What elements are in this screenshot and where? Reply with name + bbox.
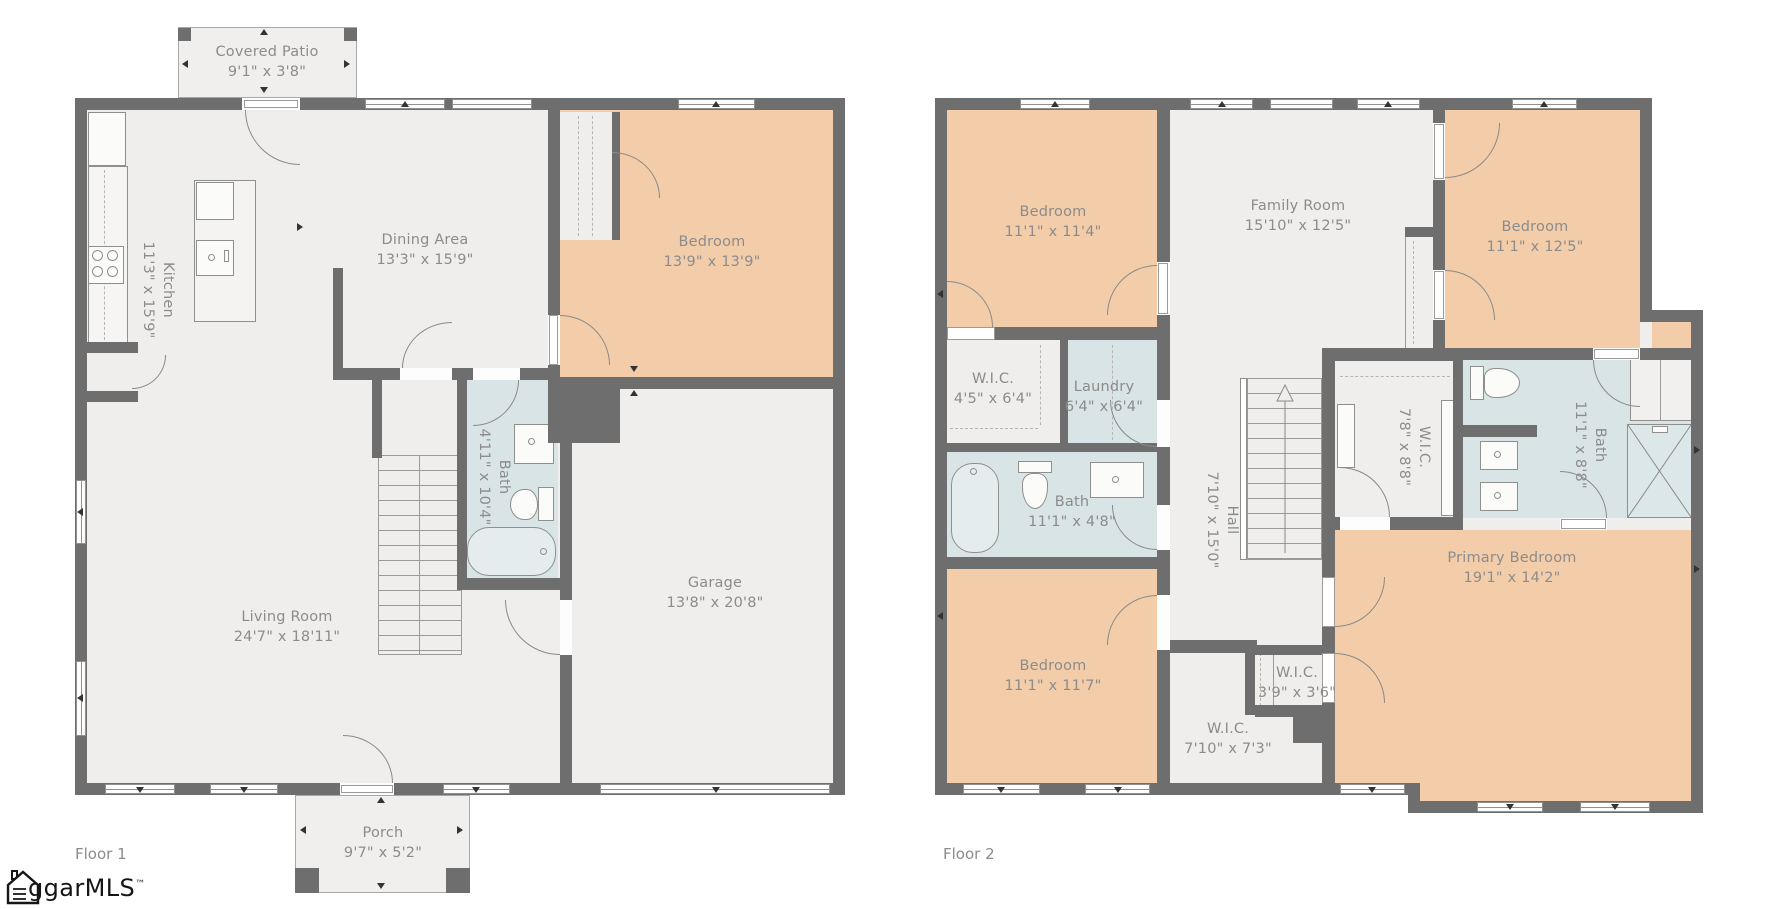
room-label-bedroom-tr: Bedroom 11'1" x 12'5" (1486, 217, 1583, 257)
room-name: Laundry (1065, 377, 1143, 397)
dimension-arrow-icon (136, 787, 144, 793)
room-label-laundry: Laundry 6'4" x 6'4" (1065, 377, 1143, 417)
wall (1453, 361, 1463, 530)
room-dims: 11'1" x 8'8" (1570, 401, 1590, 489)
room-dims: 7'10" x 15'0" (1202, 471, 1222, 568)
floor2-label: Floor 2 (943, 845, 995, 863)
door-leaf (1561, 519, 1606, 529)
wall (1433, 320, 1445, 348)
door-opening (560, 600, 572, 655)
wall (1420, 801, 1692, 813)
room-label-porch: Porch 9'7" x 5'2" (344, 823, 422, 863)
dimension-arrow-icon (1051, 101, 1059, 107)
wall (1322, 627, 1335, 653)
room-name: Bedroom (1004, 202, 1101, 222)
room-label-bath-1: Bath 4'11" x 10'4" (474, 428, 514, 525)
room-label-family-room: Family Room 15'10" x 12'5" (1245, 196, 1352, 236)
room-dims: 9'1" x 3'8" (215, 62, 318, 82)
dimension-arrow-icon (300, 826, 306, 834)
shower-x-icon (1627, 424, 1692, 518)
dimension-arrow-icon (260, 29, 268, 35)
wall (1322, 348, 1463, 361)
dimension-arrow-icon (240, 787, 248, 793)
room-dims: 11'1" x 11'4" (1004, 222, 1101, 242)
wall (1322, 530, 1335, 577)
porch-post (446, 868, 470, 893)
room-label-bath-3: Bath 11'1" x 8'8" (1570, 401, 1610, 489)
room-dims: 11'1" x 4'8" (1028, 512, 1116, 532)
closet-shelf-line (950, 428, 1038, 429)
room-dims: 9'7" x 5'2" (344, 843, 422, 863)
wall (1157, 640, 1257, 653)
room-name: W.I.C. (954, 369, 1032, 389)
dimension-arrow-icon (457, 826, 463, 834)
room-label-wic-1: W.I.C. 4'5" x 6'4" (954, 369, 1032, 409)
room-label-kitchen: Kitchen 11'3" x 15'9" (138, 241, 178, 338)
dimension-arrow-icon (297, 223, 303, 231)
wall (1433, 180, 1445, 270)
room-name: Covered Patio (215, 42, 318, 62)
toilet-tank (1018, 461, 1052, 473)
room-name: Bedroom (1004, 656, 1101, 676)
wall (1405, 227, 1445, 237)
room-name: Garage (666, 573, 763, 593)
stairs (378, 455, 462, 655)
wall (1245, 645, 1255, 715)
logo-text: ggarMLS™ (28, 874, 146, 902)
dimension-arrow-icon (1694, 565, 1700, 573)
door-leaf (1322, 577, 1335, 627)
dimension-arrow-icon (1506, 804, 1514, 810)
room-label-living-room: Living Room 24'7" x 18'11" (234, 607, 341, 647)
wall (1157, 650, 1170, 783)
wall (1157, 340, 1170, 400)
door-opening (1157, 595, 1170, 650)
room-label-bedroom-tl: Bedroom 11'1" x 11'4" (1004, 202, 1101, 242)
door-leaf (244, 100, 298, 108)
dimension-arrow-icon (1384, 101, 1392, 107)
dimension-arrow-icon (997, 787, 1005, 793)
dimension-arrow-icon (1611, 804, 1619, 810)
stairs-up-arrow-icon (1270, 383, 1300, 558)
room-label-wic-4: W.I.C. 7'10" x 7'3" (1184, 719, 1272, 759)
linen-divider-line (1660, 359, 1661, 421)
burner-icon (92, 266, 103, 277)
door-opening (1157, 505, 1170, 550)
wall (947, 443, 1157, 452)
toilet-tank (538, 487, 554, 521)
room-dims: 7'8" x 8'8" (1394, 408, 1414, 486)
wall (1157, 550, 1170, 595)
closet-rod-line (578, 116, 579, 236)
pantry-area (87, 353, 132, 391)
dimension-arrow-icon (472, 787, 480, 793)
room-name: Bath (494, 428, 514, 525)
room-dims: 13'9" x 13'9" (663, 252, 760, 272)
wall (1433, 110, 1445, 123)
wall (1640, 310, 1703, 322)
dimension-arrow-icon (1540, 101, 1548, 107)
trademark-symbol: ™ (135, 879, 145, 890)
wall (995, 327, 1157, 340)
half-wall (1457, 425, 1537, 437)
patio-post (344, 28, 357, 41)
wall (1322, 348, 1335, 530)
room-name: Bath (1590, 401, 1610, 489)
faucet-icon (540, 548, 547, 555)
door-opening (1157, 400, 1170, 447)
window (1270, 99, 1333, 109)
room-dims: 13'3" x 15'9" (376, 250, 473, 270)
room-name: W.I.C. (1184, 719, 1272, 739)
wall-notch (548, 377, 620, 443)
toilet-bowl (510, 489, 538, 520)
dimension-arrow-icon (401, 101, 409, 107)
wall (333, 368, 400, 380)
dimension-arrow-icon (1694, 446, 1700, 454)
floor1-label: Floor 1 (75, 845, 127, 863)
wall (333, 268, 343, 380)
door-leaf (549, 315, 558, 365)
wall (1157, 110, 1170, 262)
patio-post (178, 28, 191, 41)
wall (80, 391, 138, 402)
dimension-arrow-icon (630, 366, 638, 372)
wall (1157, 315, 1170, 340)
bedroom1-closet (560, 112, 612, 240)
room-label-primary-bedroom: Primary Bedroom 19'1" x 14'2" (1447, 548, 1576, 588)
door-opening (1340, 517, 1390, 530)
room-dims: 19'1" x 14'2" (1447, 568, 1576, 588)
room-dims: 24'7" x 18'11" (234, 627, 341, 647)
wall (372, 380, 382, 458)
room-label-bedroom-bl: Bedroom 11'1" x 11'7" (1004, 656, 1101, 696)
door-leaf (1434, 124, 1444, 179)
room-name: W.I.C. (1414, 408, 1434, 486)
dimension-arrow-icon (712, 101, 720, 107)
room-dims: 13'8" x 20'8" (666, 593, 763, 613)
faucet-icon (224, 250, 229, 262)
room-name: W.I.C. (1258, 663, 1336, 683)
sink-drain-icon (208, 254, 215, 261)
toilet-tank (1470, 366, 1484, 400)
door-opening (473, 368, 520, 380)
room-name: Kitchen (158, 241, 178, 338)
dimension-arrow-icon (937, 612, 943, 620)
room-dims: 11'1" x 11'7" (1004, 676, 1101, 696)
brand-logo: ggarMLS™ (4, 868, 154, 908)
room-name: Porch (344, 823, 422, 843)
dimension-arrow-icon (1368, 787, 1376, 793)
room-dims: 15'10" x 12'5" (1245, 216, 1352, 236)
dimension-arrow-icon (260, 87, 268, 93)
floorplan-canvas: Covered Patio 9'1" x 3'8" Kitchen 11'3" … (0, 0, 1780, 909)
room-name: Hall (1222, 471, 1242, 568)
primary-bedroom-area (1420, 783, 1692, 801)
wall (80, 342, 138, 353)
bedroom-tr-area (1652, 322, 1691, 348)
wall (935, 98, 947, 795)
wall (1390, 517, 1453, 530)
wall (560, 655, 572, 783)
dimension-arrow-icon (377, 797, 385, 803)
sink-drain-icon (1112, 476, 1119, 483)
window (452, 99, 532, 109)
room-dims: 4'11" x 10'4" (474, 428, 494, 525)
door-leaf (341, 785, 393, 793)
room-name: Primary Bedroom (1447, 548, 1576, 568)
wall (457, 578, 570, 590)
room-label-bath-2: Bath 11'1" x 4'8" (1028, 492, 1116, 532)
wall (833, 98, 845, 795)
wall (1245, 645, 1322, 655)
burner-icon (92, 250, 103, 261)
wall (1322, 703, 1335, 783)
sink-drain-icon (1494, 451, 1501, 458)
wall (452, 368, 473, 380)
dimension-arrow-icon (1218, 101, 1226, 107)
logo-word: ggarMLS (28, 874, 135, 902)
stair-rail-line (419, 455, 420, 655)
room-name: Bath (1028, 492, 1116, 512)
room-name: Living Room (234, 607, 341, 627)
dimension-arrow-icon (344, 60, 350, 68)
dimension-arrow-icon (937, 290, 943, 298)
door-leaf (1434, 271, 1444, 319)
room-label-hall: Hall 7'10" x 15'0" (1202, 471, 1242, 568)
wall (947, 557, 1163, 569)
wall (1408, 783, 1420, 813)
closet-edge-line (1405, 237, 1406, 348)
burner-icon (107, 250, 118, 261)
room-name: Bedroom (663, 232, 760, 252)
bathtub-fixture (951, 463, 999, 553)
room-name: Bedroom (1486, 217, 1583, 237)
faucet-icon (970, 468, 977, 475)
dimension-arrow-icon (712, 787, 720, 793)
porch-post (295, 868, 319, 893)
wall (1640, 348, 1692, 360)
dimension-arrow-icon (182, 60, 188, 68)
dimension-arrow-icon (77, 694, 83, 702)
room-label-wic-3: W.I.C. 3'9" x 3'6" (1258, 663, 1336, 703)
closet-rod-line (1040, 345, 1041, 425)
bedroom-tr-closet (1405, 237, 1433, 348)
room-label-garage: Garage 13'8" x 20'8" (666, 573, 763, 613)
wall (457, 380, 467, 578)
room-label-bedroom-1: Bedroom 13'9" x 13'9" (663, 232, 760, 272)
wall (560, 389, 572, 600)
wall (548, 110, 560, 315)
room-label-dining-area: Dining Area 13'3" x 15'9" (376, 230, 473, 270)
room-dims: 3'9" x 3'6" (1258, 683, 1336, 703)
closet-shelf (1337, 404, 1355, 468)
door-opening (400, 368, 452, 380)
room-dims: 6'4" x 6'4" (1065, 397, 1143, 417)
sink-drain-icon (1494, 492, 1501, 499)
sink-drain-icon (528, 438, 535, 445)
fridge-fixture (88, 112, 126, 166)
room-dims: 11'3" x 15'9" (138, 241, 158, 338)
wall (1640, 98, 1652, 322)
room-dims: 11'1" x 12'5" (1486, 237, 1583, 257)
dimension-arrow-icon (630, 390, 638, 396)
closet-shelf-line (1340, 376, 1450, 377)
room-dims: 7'10" x 7'3" (1184, 739, 1272, 759)
burner-icon (107, 266, 118, 277)
door-leaf (1594, 349, 1639, 359)
room-label-covered-patio: Covered Patio 9'1" x 3'8" (215, 42, 318, 82)
wall (1293, 717, 1322, 743)
room-dims: 4'5" x 6'4" (954, 389, 1032, 409)
room-label-wic-2: W.I.C. 7'8" x 8'8" (1394, 408, 1434, 486)
island-counter (196, 182, 234, 220)
dimension-arrow-icon (77, 508, 83, 516)
door-leaf (1158, 263, 1168, 314)
door-leaf (947, 327, 995, 340)
room-name: Dining Area (376, 230, 473, 250)
room-name: Family Room (1245, 196, 1352, 216)
wall (520, 368, 560, 380)
dimension-arrow-icon (377, 883, 385, 889)
wall (1255, 705, 1322, 717)
closet-rod-line (592, 116, 593, 236)
wall (1157, 447, 1170, 505)
closet-rod-line (1413, 241, 1414, 344)
dimension-arrow-icon (1114, 787, 1122, 793)
wall (1445, 348, 1593, 360)
